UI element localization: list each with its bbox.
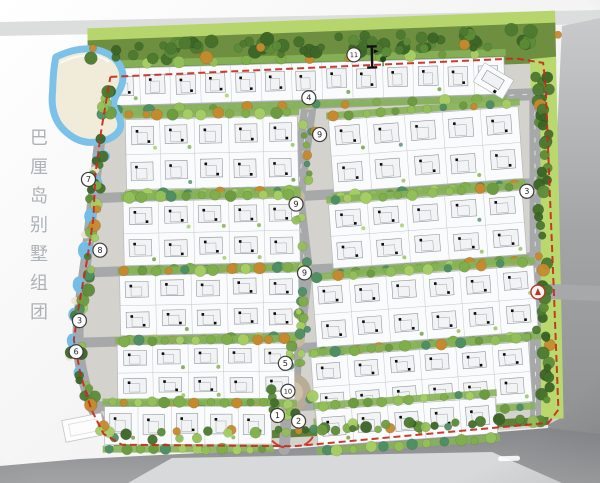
plan-title-vertical: 巴厘岛别墅组团 xyxy=(24,128,66,338)
site-plan-photo: 1149997836351012 巴厘岛别墅组团 xyxy=(0,0,600,483)
site-plan-canvas: 1149997836351012 xyxy=(0,0,600,483)
photo-vignette xyxy=(0,0,600,483)
